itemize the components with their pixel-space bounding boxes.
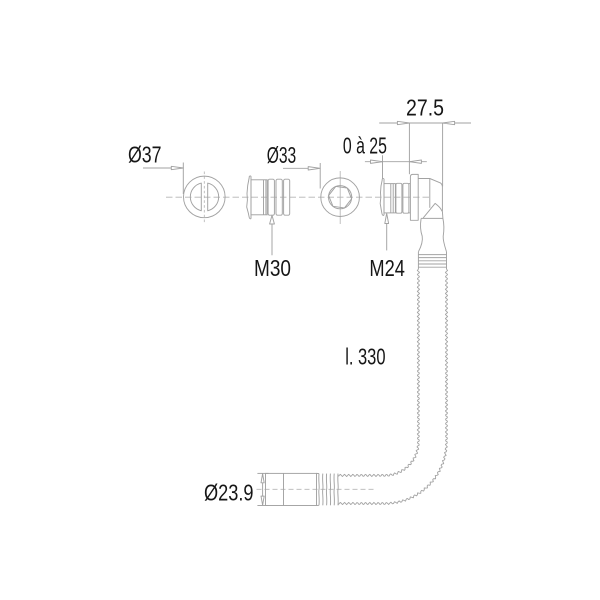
- svg-text:l. 330: l. 330: [345, 344, 385, 370]
- svg-text:M30: M30: [254, 255, 291, 281]
- svg-text:Ø33: Ø33: [267, 142, 297, 168]
- svg-text:0 à 25: 0 à 25: [343, 133, 387, 159]
- svg-text:M24: M24: [369, 255, 405, 281]
- svg-text:Ø37: Ø37: [128, 141, 162, 167]
- svg-text:Ø23.9: Ø23.9: [204, 480, 254, 506]
- svg-text:27.5: 27.5: [406, 95, 444, 121]
